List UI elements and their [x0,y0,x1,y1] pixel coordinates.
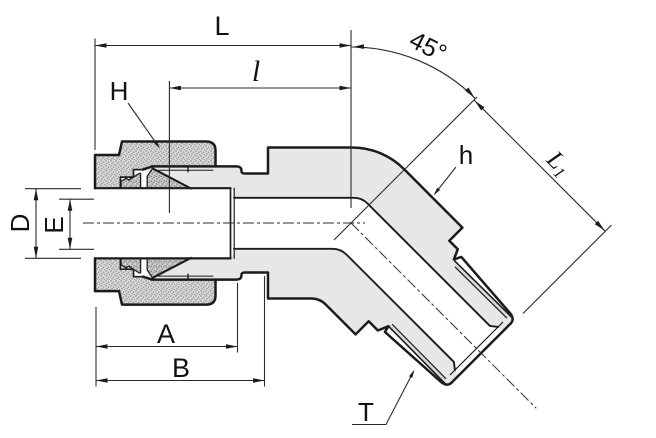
svg-text:H: H [110,76,129,106]
svg-text:h: h [459,140,473,170]
svg-text:E: E [39,216,69,233]
svg-text:l: l [252,55,260,88]
svg-text:D: D [5,214,35,233]
svg-text:B: B [172,353,190,383]
svg-text:A: A [157,319,175,349]
svg-text:T: T [358,397,374,427]
svg-text:L1: L1 [539,145,576,182]
svg-text:L: L [214,11,229,41]
svg-text:45°: 45° [405,26,451,68]
